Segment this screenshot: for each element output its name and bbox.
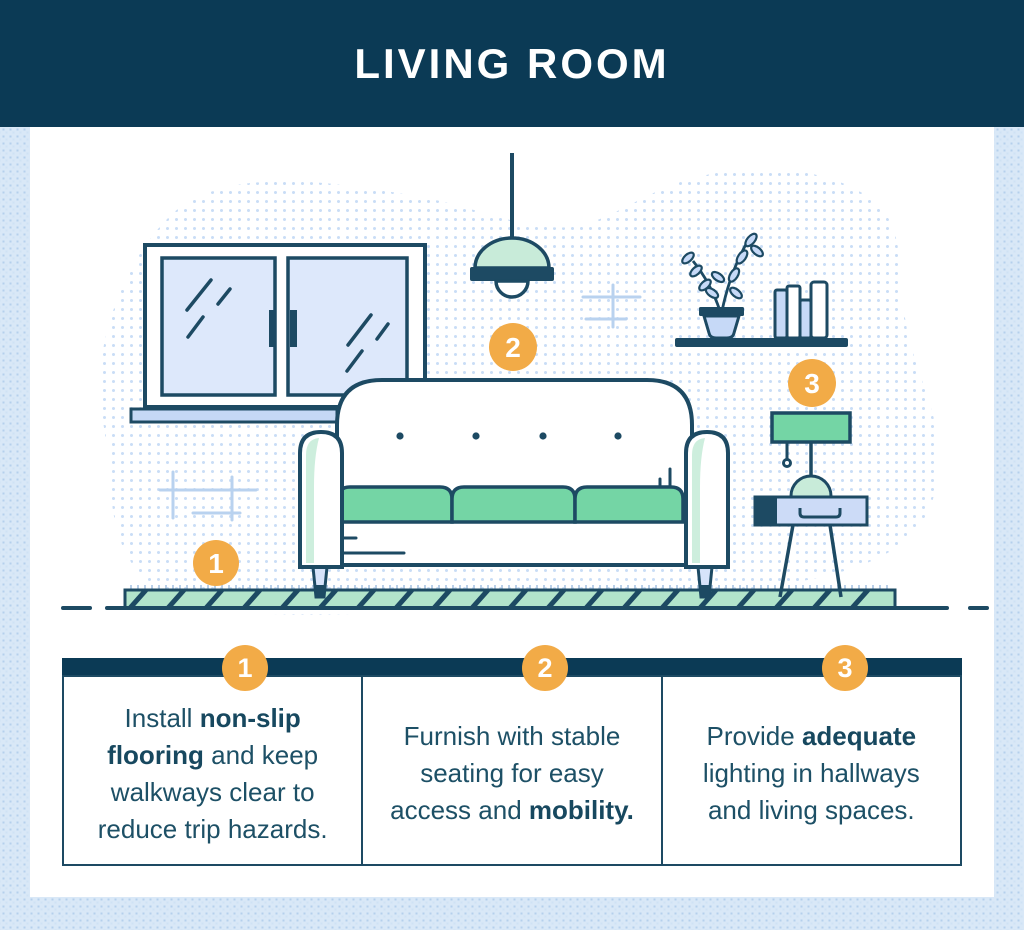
couch-body (337, 380, 692, 565)
svg-text:3: 3 (804, 368, 820, 399)
tip-text-1: Install non-slip flooring and keep walkw… (86, 700, 339, 848)
tip-text-2: Furnish with stable seating for easy acc… (385, 718, 638, 829)
tip-card-3: Provide adequate lighting in hallways an… (661, 675, 962, 866)
marker-3: 3 (788, 359, 836, 407)
tip-card-1: Install non-slip flooring and keep walkw… (62, 675, 363, 866)
tips-row: Install non-slip flooring and keep walkw… (62, 675, 962, 866)
couch-cushions (338, 487, 683, 522)
svg-text:1: 1 (208, 548, 224, 579)
windowsill (131, 409, 337, 422)
living-room-illustration: 1 2 3 (30, 127, 994, 632)
content-panel: 1 2 3 Install non-slip flooring and keep… (30, 127, 994, 897)
tip-text-3: Provide adequate lighting in hallways an… (685, 718, 938, 829)
svg-text:2: 2 (505, 332, 521, 363)
marker-2: 2 (489, 323, 537, 371)
tip-card-2: Furnish with stable seating for easy acc… (361, 675, 662, 866)
tip-badge-1: 1 (222, 645, 268, 691)
couch (300, 380, 728, 597)
infographic-page: LIVING ROOM (0, 0, 1024, 930)
page-title: LIVING ROOM (354, 40, 669, 88)
lamp-shade (772, 413, 850, 442)
marker-1: 1 (193, 540, 239, 586)
books (775, 282, 827, 338)
tip-badge-2: 2 (522, 645, 568, 691)
title-bar: LIVING ROOM (0, 0, 1024, 127)
tip-badge-3: 3 (822, 645, 868, 691)
